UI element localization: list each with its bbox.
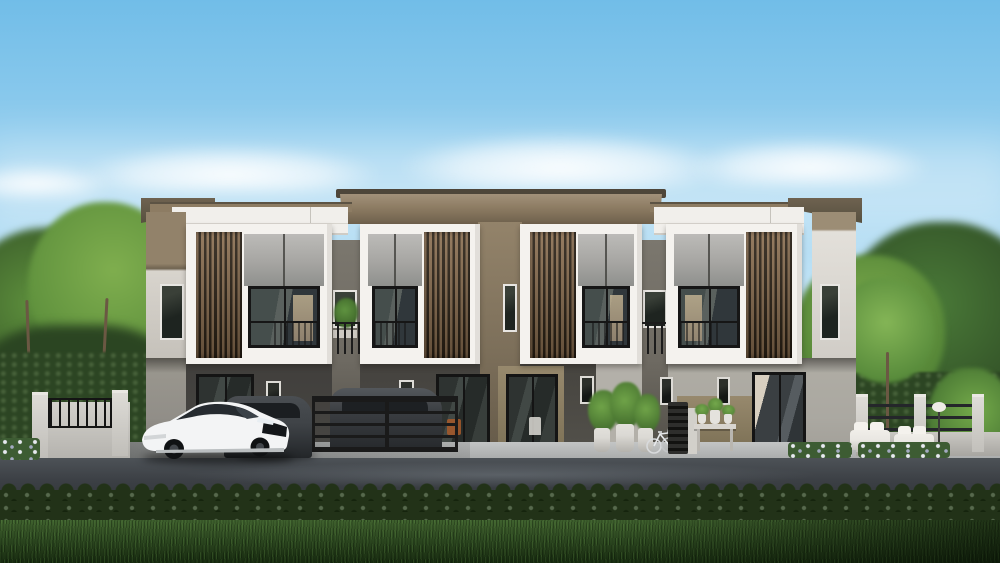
flower-bed — [0, 438, 40, 460]
lawn-shadow — [620, 520, 1000, 563]
black-metal-gate — [312, 396, 458, 452]
gate-post-wall — [688, 408, 697, 454]
fence-post — [972, 394, 984, 452]
bench-leg — [697, 429, 700, 451]
small-pot — [710, 410, 720, 424]
townhouse-exterior-render — [0, 0, 1000, 563]
plant-pot — [616, 424, 634, 452]
garden-lamp — [938, 408, 940, 442]
boundary-railing-left — [48, 398, 112, 428]
street-objects — [0, 0, 1000, 563]
louvered-gate-post — [668, 402, 688, 454]
white-sedan — [136, 390, 296, 464]
flower-bed — [788, 442, 852, 458]
flower-bed — [858, 442, 950, 458]
plant-pot — [594, 428, 610, 452]
small-pot — [698, 414, 706, 424]
bench-leg — [730, 429, 733, 451]
wall-post — [112, 390, 128, 456]
garden-lamp-shade — [932, 402, 946, 412]
small-pot — [724, 414, 732, 424]
front-hedge — [0, 490, 1000, 524]
